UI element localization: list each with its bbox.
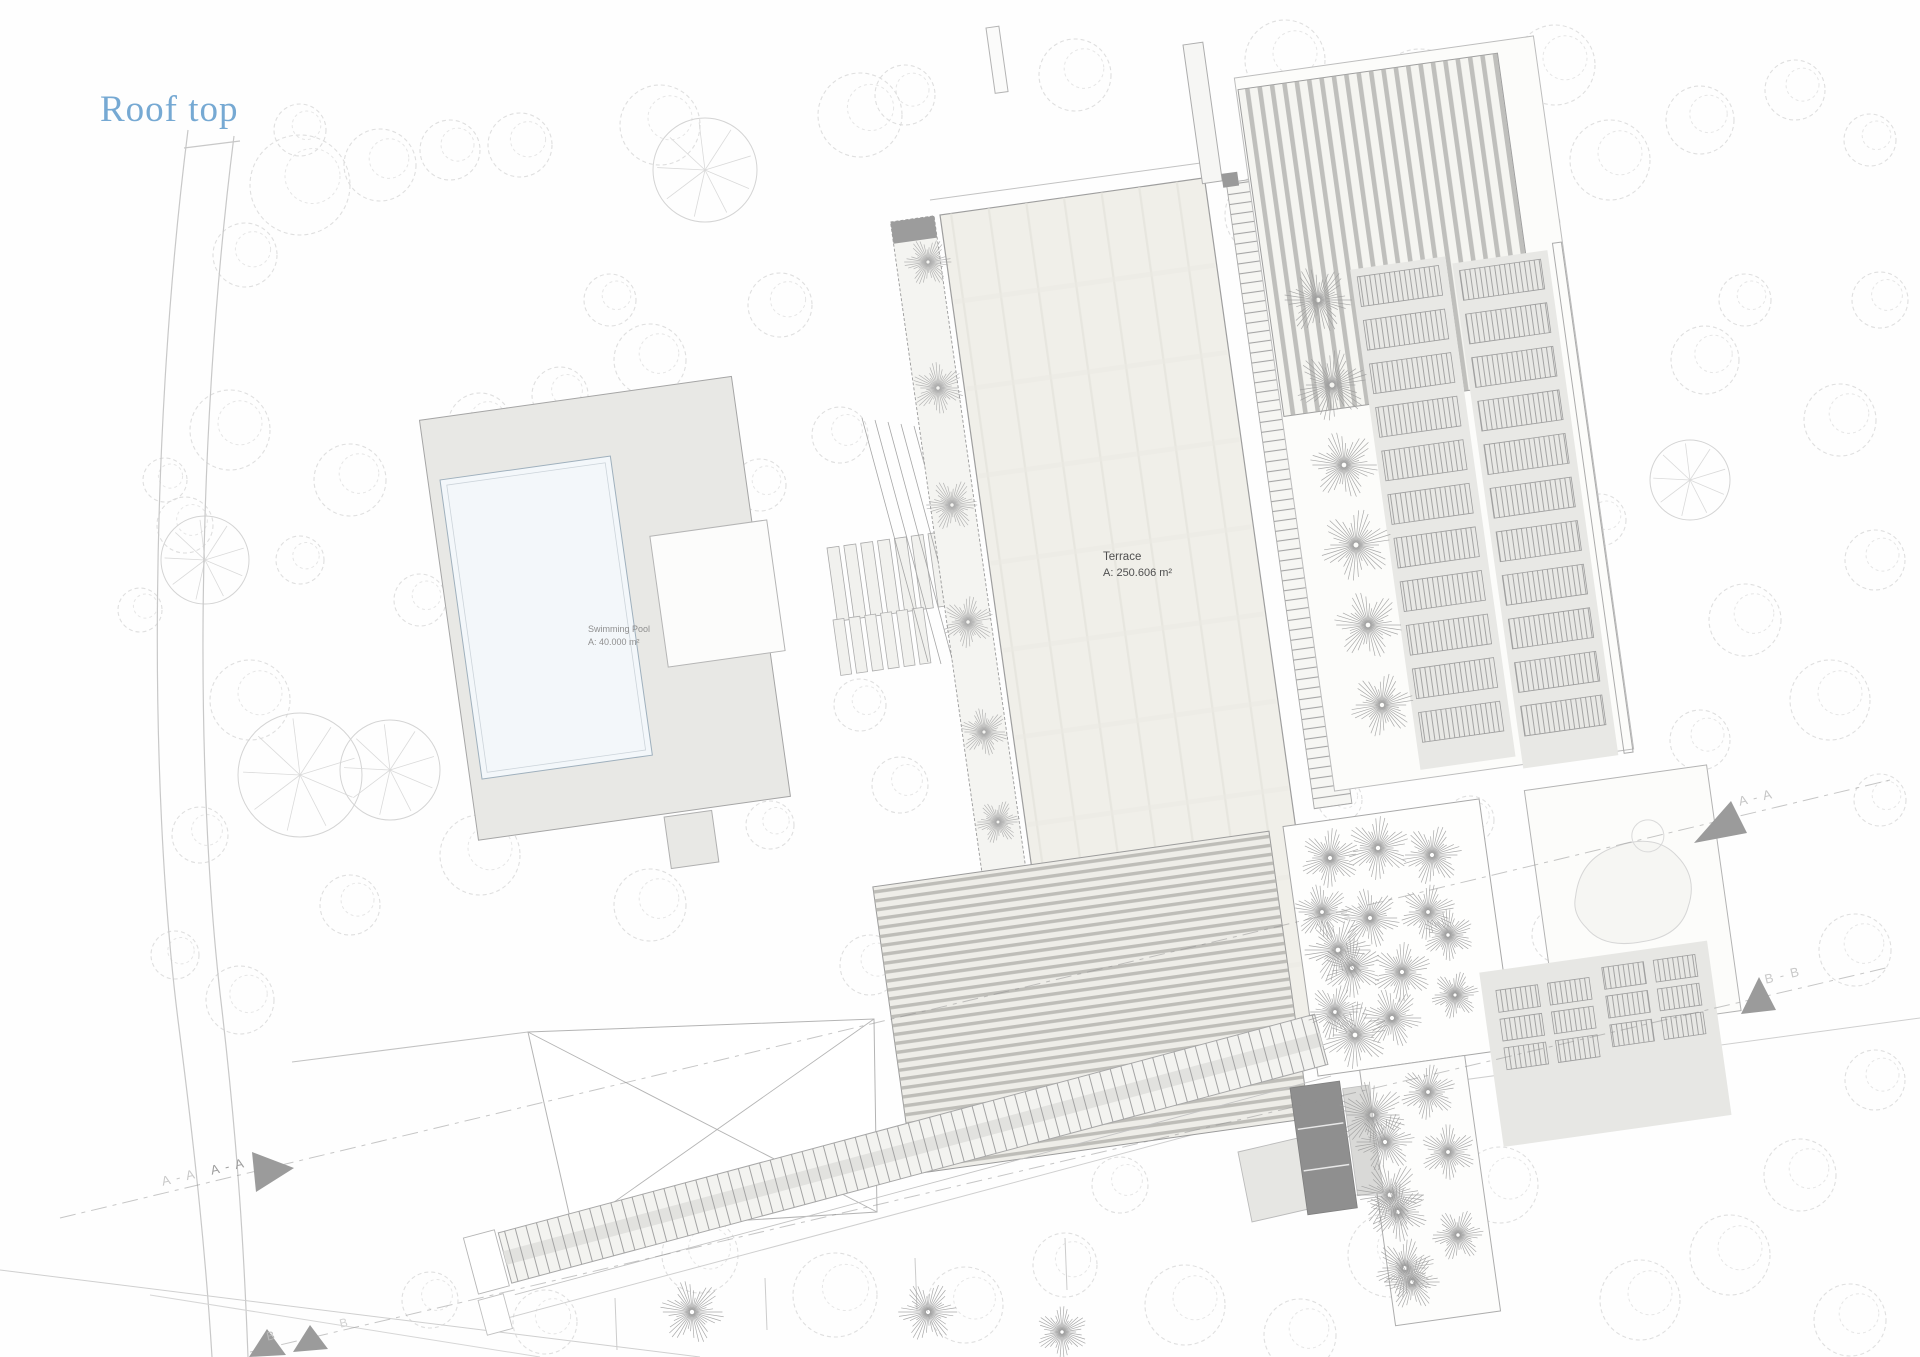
tree-outline-icon [1264,1299,1336,1357]
tree-outline-icon [1709,584,1781,656]
section-arrow-b-bottom-1 [249,1329,286,1357]
tree-outline-icon [746,801,794,849]
tree-outline-icon [834,679,886,731]
tree-outline-icon [118,588,162,632]
section-arrow-b-bottom-2 [293,1325,328,1352]
tree-outline-icon [818,73,902,157]
radial-tree-icon [898,1285,957,1339]
tree-outline-icon [793,1253,877,1337]
radial-tree-icon [1039,1306,1085,1357]
tree-outline-icon [344,129,416,201]
tree-outline-icon [614,869,686,941]
tree-outline-icon [1671,326,1739,394]
tree-outline-icon [190,390,270,470]
north-wall-strips [986,26,1239,190]
tree-outline-icon [420,120,480,180]
tree-outline-icon [1852,272,1908,328]
tree-outline-icon [1690,1215,1770,1295]
tree-outline-icon [875,65,935,125]
tree-outline-icon [513,1290,577,1354]
boardwalk-posts [615,1238,1067,1350]
tree-outline-icon [151,931,199,979]
site-plan-canvas: Roof top Terrace A: 250.606 m² Swimming … [0,0,1920,1357]
tree-outline-icon [1814,1284,1886,1356]
tree-outline-icon [1666,86,1734,154]
tree-outline-icon [1145,1265,1225,1345]
tree-outline-icon [1765,60,1825,120]
spoke-tree-icon [340,720,440,820]
spoke-tree-icon [1650,440,1730,520]
tree-outline-icon [812,407,868,463]
tree-outline-icon [1845,1050,1905,1110]
tree-outline-icon [1804,384,1876,456]
tree-outline-icon [1600,1260,1680,1340]
tree-outline-icon [1819,914,1891,986]
section-arrow-a-left [252,1152,294,1192]
stair-flight-upper [827,532,950,621]
tree-outline-icon [872,757,928,813]
tree-outline-icon [276,536,324,584]
site-plan-drawing [0,0,1920,1357]
pool-building [419,374,812,894]
tree-outline-icon [1039,39,1111,111]
tree-outline-icon [1764,1139,1836,1211]
spoke-tree-icon [238,713,362,837]
tree-outline-icon [1719,274,1771,326]
tree-outline-icon [1670,710,1730,770]
tree-outline-icon [1854,774,1906,826]
tree-outline-icon [320,875,380,935]
tree-outline-icon [402,1272,458,1328]
tree-outline-icon [748,273,812,337]
tree-outline-icon [1844,114,1896,166]
tree-outline-icon [172,807,228,863]
tree-outline-icon [1790,660,1870,740]
tree-outline-icon [620,85,700,165]
tree-outline-icon [584,274,636,326]
tree-outline-icon [1570,120,1650,200]
tree-outline-icon [143,458,187,502]
tree-outline-icon [274,104,326,156]
tree-outline-icon [488,113,552,177]
tree-outline-icon [1092,1157,1148,1213]
tree-outline-icon [314,444,386,516]
tree-outline-icon [210,660,290,740]
tree-outline-icon [1845,530,1905,590]
tree-outline-icon [206,966,274,1034]
spoke-tree-icon [653,118,757,222]
tree-outline-icon [394,574,446,626]
tree-outline-icon [250,135,350,235]
